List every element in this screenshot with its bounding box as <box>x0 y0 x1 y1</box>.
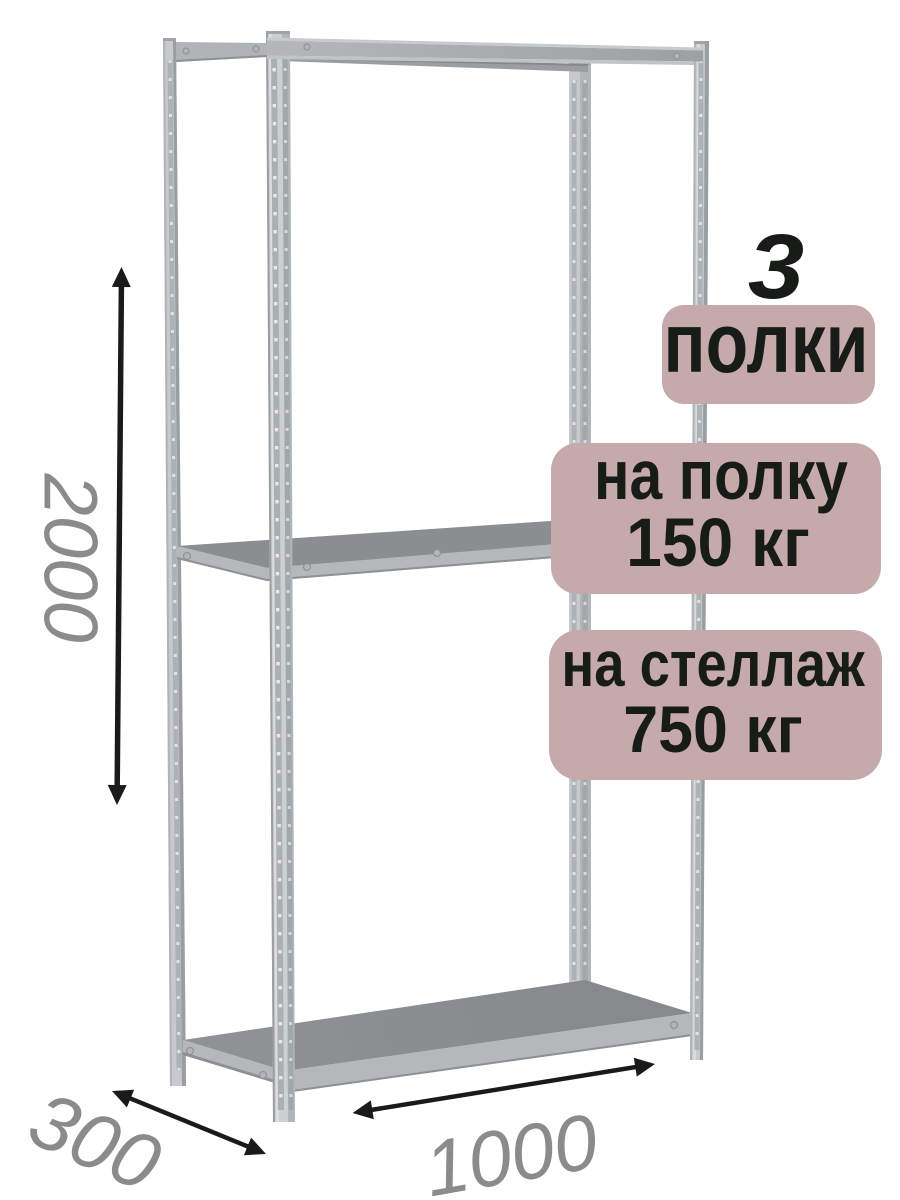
svg-text:150 кг: 150 кг <box>626 505 810 582</box>
svg-text:на полку: на полку <box>594 435 848 514</box>
svg-text:полки: полки <box>663 297 868 391</box>
svg-text:2000: 2000 <box>28 472 113 642</box>
svg-text:на стеллаж: на стеллаж <box>561 628 865 700</box>
svg-text:750 кг: 750 кг <box>623 693 802 767</box>
